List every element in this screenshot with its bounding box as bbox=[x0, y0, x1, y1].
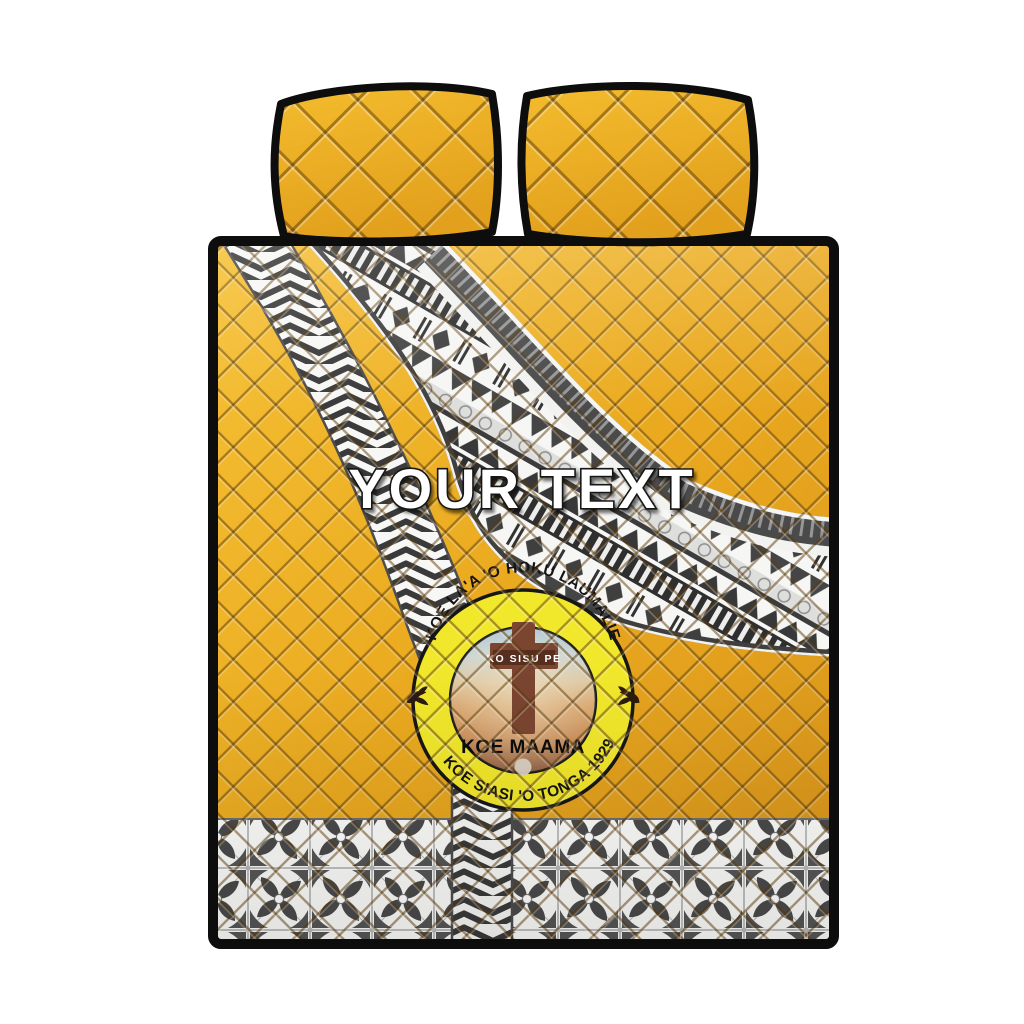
product-image: KO SISU PE KOE MAAMA KOE LA'A 'O HOKU LA… bbox=[0, 0, 1024, 1024]
pillow-right bbox=[521, 86, 754, 242]
pillow-left bbox=[275, 86, 498, 241]
pillow-right-stitching bbox=[521, 86, 754, 242]
tonga-quilt-bed-set: KO SISU PE KOE MAAMA KOE LA'A 'O HOKU LA… bbox=[0, 0, 1024, 1024]
pillow-left-stitching bbox=[275, 86, 498, 241]
quilt-cover: KO SISU PE KOE MAAMA KOE LA'A 'O HOKU LA… bbox=[208, 236, 840, 950]
quilt-lighting-overlay bbox=[208, 236, 840, 950]
custom-text: YOUR TEXT bbox=[348, 457, 695, 520]
